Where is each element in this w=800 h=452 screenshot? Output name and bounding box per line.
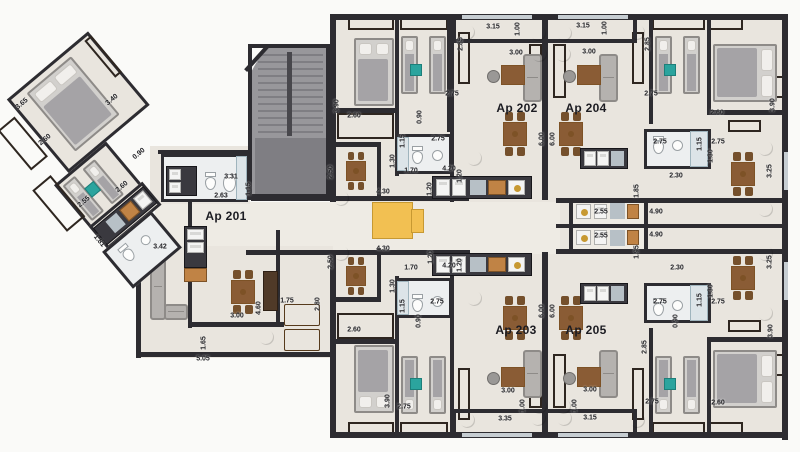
- dining-chair: [561, 296, 569, 305]
- apartment-label: Ap 203: [495, 324, 536, 336]
- dimension-label: 3.15: [486, 24, 500, 31]
- table-center: [568, 315, 574, 321]
- dining-table: [346, 266, 366, 286]
- dining-chair: [358, 257, 364, 265]
- dimension-label: 4.30: [376, 189, 390, 196]
- dining-chair: [745, 187, 753, 196]
- plant-icon: [530, 25, 545, 40]
- appliance-detail: [137, 194, 144, 201]
- office-chair: [487, 372, 500, 385]
- dimension-label: 6.00: [539, 304, 546, 318]
- dining-chair: [358, 287, 364, 295]
- lounger: [284, 329, 320, 351]
- double-bed: [713, 44, 777, 102]
- steel-sink: [611, 286, 624, 301]
- plant-icon: [531, 398, 546, 413]
- dimension-label: 2.75: [645, 399, 659, 406]
- wood-cabinet: [488, 180, 506, 195]
- stair-rail: [287, 52, 292, 136]
- wall: [569, 198, 573, 253]
- wood-deck: [728, 120, 761, 132]
- stove: [576, 230, 591, 245]
- dimension-label: 2.75: [430, 299, 444, 306]
- wall: [452, 39, 637, 43]
- appliance-detail: [439, 182, 447, 185]
- window: [784, 152, 788, 190]
- apartment-label: Ap 205: [565, 324, 606, 336]
- dimension-label: 3.90: [385, 394, 392, 408]
- dimension-label: 3.35: [498, 416, 512, 423]
- dimension-label: 1.75: [280, 298, 294, 305]
- dimension-label: 2.63: [214, 193, 228, 200]
- dining-table: [559, 122, 583, 146]
- pillow: [359, 396, 372, 408]
- sink-icon: [672, 140, 683, 151]
- wood-cabinet: [184, 268, 207, 282]
- appliance: [584, 151, 596, 166]
- sofa: [599, 54, 618, 102]
- dimension-label: 2.55: [594, 209, 608, 216]
- dimension-label: 2.85: [642, 340, 649, 354]
- plant-icon: [757, 201, 772, 216]
- office-chair: [563, 372, 576, 385]
- dimension-label: 2.80: [315, 297, 322, 311]
- dimension-label: 3.15: [576, 23, 590, 30]
- dimension-label: 3.90: [770, 98, 777, 112]
- dining-chair: [745, 291, 753, 300]
- dining-chair: [348, 182, 354, 190]
- dining-chair: [505, 296, 513, 305]
- sink-icon: [432, 150, 443, 161]
- dining-chair: [348, 152, 354, 160]
- wood-cabinet: [627, 204, 639, 219]
- blanket: [433, 360, 442, 397]
- dimension-label: 2.50: [328, 255, 335, 269]
- plant-icon: [757, 140, 772, 155]
- dimension-label: 1.15: [400, 299, 407, 313]
- stove-burner: [514, 185, 521, 192]
- stove-burner: [514, 262, 521, 269]
- wall: [556, 198, 786, 203]
- dimension-label: 3.25: [767, 164, 774, 178]
- dimension-label: 1.95: [634, 245, 641, 259]
- dimension-label: 2.75: [711, 139, 725, 146]
- steel-sink: [470, 180, 486, 195]
- dimension-label: 6.00: [550, 304, 557, 318]
- dimension-label: 2.75: [644, 91, 658, 98]
- dimension-label: 6.00: [550, 132, 557, 146]
- apartment-label: Ap 201: [205, 210, 246, 222]
- dimension-label: 3.15: [583, 415, 597, 422]
- wall: [707, 20, 711, 114]
- steel-sink: [610, 230, 625, 246]
- desk: [577, 367, 601, 387]
- dining-chair: [745, 152, 753, 161]
- desk: [577, 65, 601, 85]
- pillow: [659, 399, 668, 410]
- table-center: [353, 168, 359, 174]
- dimension-label: 3.00: [230, 313, 244, 320]
- window: [558, 433, 628, 437]
- window: [784, 262, 788, 300]
- toilet-icon: [411, 146, 424, 164]
- wood-deck: [337, 113, 394, 139]
- dimension-label: 1.70: [404, 168, 418, 175]
- sofa-cushion: [603, 373, 614, 374]
- wall: [333, 142, 381, 147]
- wall: [452, 411, 456, 435]
- dimension-label: 5.05: [196, 356, 210, 363]
- wall: [333, 108, 397, 113]
- dimension-label: 2.75: [653, 299, 667, 306]
- dimension-label: 3.00: [583, 387, 597, 394]
- pillow: [433, 399, 442, 410]
- appliance: [436, 179, 450, 196]
- dimension-label: 4.20: [442, 166, 456, 173]
- window: [462, 15, 532, 19]
- sofa-cushion: [603, 77, 614, 78]
- sofa: [523, 350, 542, 398]
- appliance-detail: [600, 154, 606, 157]
- window: [462, 433, 532, 437]
- wall: [452, 17, 456, 41]
- dimension-label: 4.30: [376, 246, 390, 253]
- dining-chair: [348, 287, 354, 295]
- dimension-label: 4.20: [442, 263, 456, 270]
- elevator: [411, 209, 424, 233]
- pillow: [68, 181, 81, 195]
- teal-rug: [664, 64, 676, 76]
- appliance: [584, 286, 596, 301]
- wall: [250, 194, 330, 199]
- plant-icon: [466, 290, 481, 305]
- stair-landing: [255, 138, 326, 195]
- wall: [450, 20, 454, 202]
- plant-icon: [629, 412, 644, 427]
- dimension-label: 1.15: [697, 137, 704, 151]
- dimension-label: 3.00: [501, 388, 515, 395]
- wall: [556, 224, 786, 228]
- pillow: [761, 355, 773, 377]
- dining-chair: [233, 270, 241, 279]
- dimension-label: 1.00: [520, 399, 527, 413]
- dimension-label: 1.85: [634, 184, 641, 198]
- sink-icon: [672, 300, 683, 311]
- pillow: [433, 40, 442, 51]
- table-center: [512, 315, 518, 321]
- teal-rug: [664, 378, 676, 390]
- dining-chair: [505, 147, 513, 156]
- sofa: [164, 304, 188, 320]
- toilet-icon: [411, 294, 424, 312]
- stove-burner: [581, 209, 588, 216]
- dimension-label: 3.31: [224, 174, 238, 181]
- dimension-label: 1.15: [246, 182, 253, 196]
- dining-chair: [517, 147, 525, 156]
- wall: [188, 322, 284, 327]
- table-center: [240, 289, 246, 295]
- blanket: [358, 350, 388, 392]
- dimension-label: 1.15: [697, 293, 704, 307]
- dimension-label: 2.75: [397, 404, 411, 411]
- dimension-label: 3.00: [509, 50, 523, 57]
- appliance: [597, 286, 609, 301]
- dimension-label: 3.90: [768, 324, 775, 338]
- floor-plan: Ap 201Ap 202Ap 204Ap 203Ap 2053.653.402.…: [0, 0, 800, 452]
- plant-icon: [333, 245, 348, 260]
- tv-panel: [263, 271, 278, 311]
- dimension-label: 2.30: [670, 265, 684, 272]
- dining-chair: [733, 256, 741, 265]
- dimension-label: 1.20: [428, 250, 435, 264]
- dimension-label: 2.60: [347, 327, 361, 334]
- plant-icon: [459, 412, 474, 427]
- dining-chair: [245, 305, 253, 314]
- blanket: [687, 360, 696, 397]
- dimension-label: 2.50: [328, 165, 335, 179]
- dimension-label: 2.60: [347, 113, 361, 120]
- wall: [330, 250, 336, 438]
- pillow: [88, 165, 101, 179]
- dining-table: [731, 266, 755, 290]
- sofa: [523, 54, 542, 102]
- wall: [333, 339, 397, 344]
- dining-chair: [733, 187, 741, 196]
- plant-icon: [629, 24, 644, 39]
- table-center: [512, 131, 518, 137]
- steel-sink: [611, 151, 624, 166]
- dimension-label: 0.90: [416, 314, 423, 328]
- wall: [644, 198, 648, 253]
- dimension-label: 4.90: [649, 232, 663, 239]
- plant-icon: [531, 46, 546, 61]
- blanket: [717, 48, 757, 97]
- dimension-label: 1.30: [390, 279, 397, 293]
- stairs: [252, 46, 329, 198]
- wood-deck: [337, 313, 394, 339]
- single-bed: [683, 36, 700, 94]
- teal-rug: [410, 64, 422, 76]
- stove: [508, 257, 525, 272]
- plant-icon: [556, 25, 571, 40]
- pillow: [376, 43, 389, 55]
- dimension-label: 2.55: [594, 233, 608, 240]
- dimension-label: 1.20: [457, 169, 464, 183]
- apartment-label: Ap 202: [496, 102, 537, 114]
- table-center: [568, 131, 574, 137]
- dimension-label: 3.25: [767, 255, 774, 269]
- blanket: [358, 59, 388, 101]
- wood-deck: [728, 320, 761, 332]
- office-chair: [487, 70, 500, 83]
- pillow: [761, 381, 773, 403]
- dimension-label: 6.00: [539, 132, 546, 146]
- plant-icon: [333, 190, 348, 205]
- dimension-label: 2.85: [645, 37, 652, 51]
- stove: [576, 204, 591, 219]
- dining-chair: [348, 257, 354, 265]
- toilet-bowl: [412, 151, 423, 164]
- desk: [501, 367, 525, 387]
- dining-chair: [245, 270, 253, 279]
- pillow: [761, 49, 773, 71]
- dining-chair: [745, 256, 753, 265]
- dimension-label: 1.70: [404, 265, 418, 272]
- single-bed: [429, 356, 446, 414]
- pillow: [405, 40, 414, 51]
- pillow: [359, 43, 372, 55]
- stove-burner: [581, 235, 588, 242]
- dimension-label: 2.85: [458, 37, 465, 51]
- pillow: [659, 40, 668, 51]
- plant-icon: [757, 305, 772, 320]
- dimension-label: 2.60: [710, 110, 724, 117]
- steel-sink: [470, 257, 486, 272]
- blanket: [433, 54, 442, 91]
- plant-icon: [466, 150, 481, 165]
- wood-cabinet: [488, 257, 506, 272]
- dimension-label: 1.00: [515, 22, 522, 36]
- dining-table: [503, 122, 527, 146]
- single-bed: [429, 36, 446, 94]
- dimension-label: 1.30: [708, 284, 715, 298]
- plant-icon: [258, 329, 273, 344]
- dimension-label: 2.30: [669, 173, 683, 180]
- dining-chair: [517, 296, 525, 305]
- dimension-label: 2.75: [711, 299, 725, 306]
- dimension-label: 0.90: [673, 314, 680, 328]
- wall: [556, 249, 786, 254]
- table-center: [353, 273, 359, 279]
- dimension-label: 1.30: [390, 154, 397, 168]
- dimension-label: 1.30: [708, 149, 715, 163]
- sofa-cushion: [527, 373, 538, 374]
- dining-chair: [733, 152, 741, 161]
- dimension-label: 0.90: [417, 110, 424, 124]
- wall: [707, 338, 711, 432]
- dimension-label: 2.75: [431, 136, 445, 143]
- elevator: [372, 202, 413, 239]
- blanket: [717, 354, 757, 403]
- appliance-detail: [600, 289, 606, 292]
- table-center: [740, 171, 746, 177]
- plant-icon: [555, 398, 570, 413]
- dimension-label: 2.75: [653, 139, 667, 146]
- dimension-label: 1.20: [427, 182, 434, 196]
- dimension-label: 2.60: [711, 400, 725, 407]
- pillow: [687, 399, 696, 410]
- teal-rug: [410, 378, 422, 390]
- dining-chair: [358, 152, 364, 160]
- sofa: [599, 350, 618, 398]
- floor-plan-viewport: Ap 201Ap 202Ap 204Ap 203Ap 2053.653.402.…: [0, 0, 800, 452]
- pillow: [687, 40, 696, 51]
- apartment-label: Ap 204: [565, 102, 606, 114]
- sofa-cushion: [527, 77, 538, 78]
- toilet-bowl: [412, 299, 423, 312]
- dimension-label: 1.00: [572, 399, 579, 413]
- wall: [136, 352, 336, 357]
- dining-table: [231, 280, 255, 304]
- dining-chair: [358, 182, 364, 190]
- window: [558, 15, 628, 19]
- wall: [450, 250, 454, 432]
- stove: [508, 180, 525, 195]
- dining-table: [346, 161, 366, 181]
- dimension-label: 3.42: [153, 244, 167, 251]
- dimension-label: 1.65: [201, 336, 208, 350]
- appliance: [597, 151, 609, 166]
- single-bed: [683, 356, 700, 414]
- dimension-label: 1.20: [457, 258, 464, 272]
- blanket: [687, 54, 696, 91]
- table-center: [740, 275, 746, 281]
- wall: [649, 20, 653, 124]
- dimension-label: 3.00: [582, 49, 596, 56]
- sofa-cushion: [168, 311, 184, 312]
- dimension-label: 1.15: [400, 134, 407, 148]
- wall: [333, 297, 381, 302]
- office-chair: [563, 70, 576, 83]
- steel-sink: [610, 203, 625, 219]
- appliance-detail: [587, 289, 593, 292]
- double-bed: [354, 38, 394, 106]
- plant-icon: [555, 46, 570, 61]
- desk: [501, 65, 525, 85]
- dining-chair: [561, 147, 569, 156]
- wall: [377, 248, 381, 302]
- wall: [649, 328, 653, 432]
- appliance-detail: [587, 154, 593, 157]
- dimension-label: 3.90: [334, 99, 341, 113]
- dimension-label: 4.60: [256, 301, 263, 315]
- dimension-label: 1.00: [602, 21, 609, 35]
- wood-cabinet: [627, 230, 639, 245]
- pillow: [761, 75, 773, 97]
- dimension-label: 4.90: [649, 209, 663, 216]
- dining-table: [731, 162, 755, 186]
- dining-chair: [733, 291, 741, 300]
- dimension-label: 2.75: [445, 91, 459, 98]
